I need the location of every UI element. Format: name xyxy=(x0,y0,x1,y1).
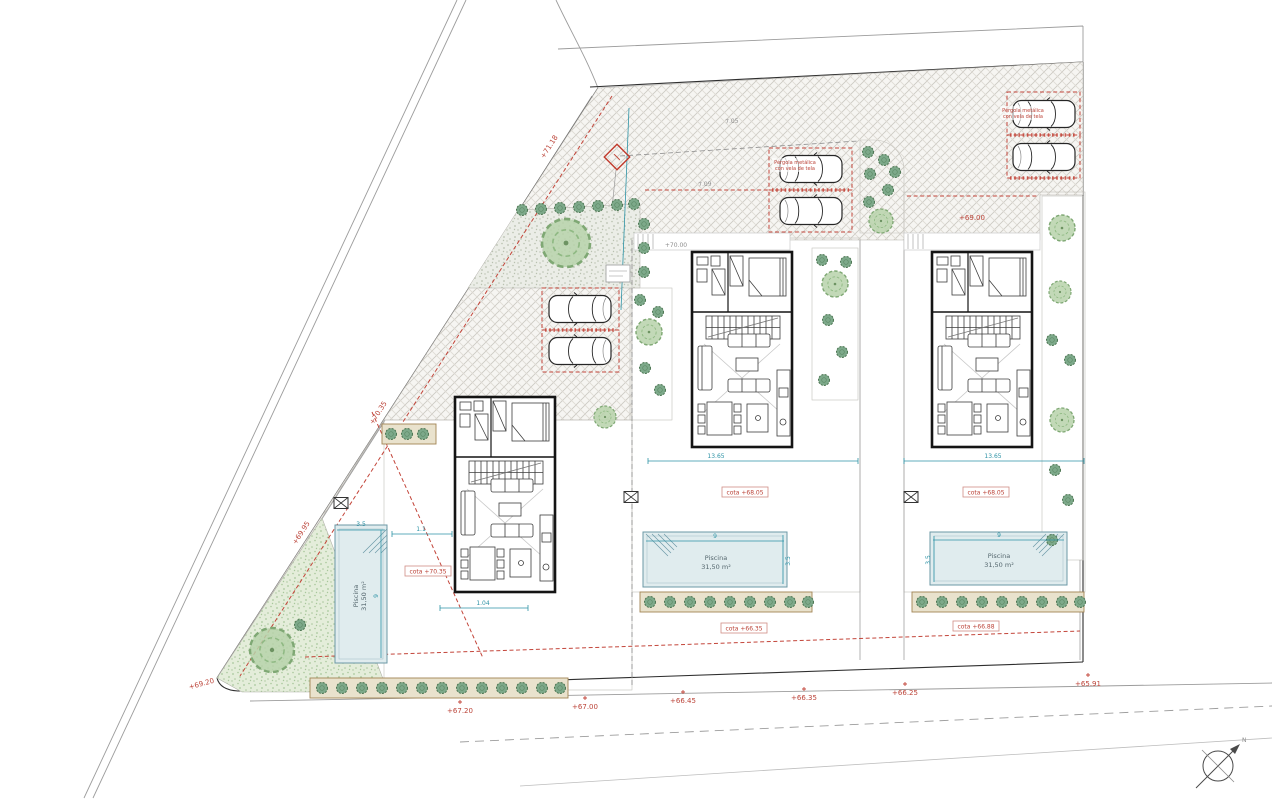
villa-1-plan xyxy=(455,397,555,592)
street-elevation: +65.91 xyxy=(1075,680,1101,688)
north-compass: N xyxy=(1196,737,1247,788)
column-marker xyxy=(334,498,348,509)
north-label: N xyxy=(1242,737,1247,744)
svg-text:cota +70.35: cota +70.35 xyxy=(409,569,446,576)
dimension-label: 13.65 xyxy=(984,453,1001,460)
pool-area: 31,50 m² xyxy=(701,563,731,571)
svg-text:cota +66.88: cota +66.88 xyxy=(957,624,994,631)
villa-3-plan xyxy=(932,252,1032,447)
svg-text:cota +66.35: cota +66.35 xyxy=(725,626,762,633)
dimension-label: 1.1 xyxy=(416,526,426,533)
car xyxy=(1013,141,1075,174)
tree xyxy=(250,628,294,672)
cota-box: cota +70.35 xyxy=(405,566,451,576)
tree xyxy=(1050,408,1074,432)
street-elevation: +66.25 xyxy=(892,689,918,697)
cota-box: cota +68.05 xyxy=(722,487,768,497)
car xyxy=(549,335,611,368)
tree xyxy=(1049,215,1075,241)
column-marker xyxy=(624,492,638,503)
dimension-label: 1.04 xyxy=(476,600,490,607)
svg-text:cota +68.05: cota +68.05 xyxy=(967,490,1004,497)
svg-text:cota +68.05: cota +68.05 xyxy=(726,490,763,497)
dimension-label: 9 xyxy=(373,594,380,598)
tree xyxy=(594,406,616,428)
elevation-label: +70.00 xyxy=(665,242,687,249)
car xyxy=(549,293,611,326)
pergola-note: con vela de tela xyxy=(1003,114,1043,120)
cota-box: cota +66.35 xyxy=(721,623,767,633)
pool-2: Piscina 31,50 m² xyxy=(643,532,787,587)
street-elevation: +67.00 xyxy=(572,703,598,711)
tree xyxy=(1049,281,1071,303)
street-elevation: +66.35 xyxy=(791,694,817,702)
pool-label: Piscina xyxy=(988,552,1010,560)
villa-2-plan xyxy=(692,252,792,447)
pergola-note: Pérgola metálica xyxy=(1002,107,1044,114)
tree xyxy=(542,219,590,267)
elevation-label: +70.35 xyxy=(368,400,389,426)
cota-box: cota +68.05 xyxy=(963,487,1009,497)
pergola-note: con vela de tela xyxy=(775,166,815,172)
elevation-label: +69.20 xyxy=(188,677,215,691)
pool-1: Piscina 31,50 m² xyxy=(335,525,387,663)
elevation-label: +69.00 xyxy=(959,214,985,222)
pool-label: Piscina xyxy=(352,585,360,607)
cota-box: cota +66.88 xyxy=(953,621,999,631)
site-plan-drawing: Piscina 31,50 m² Piscina 31,50 m² Piscin… xyxy=(0,0,1280,800)
dimension-label: 13.65 xyxy=(707,453,724,460)
tree xyxy=(869,209,893,233)
car xyxy=(780,195,842,228)
pool-area: 31,50 m² xyxy=(984,561,1014,569)
pool-label: Piscina xyxy=(705,554,727,562)
dimension-label: 3.5 xyxy=(925,555,932,565)
tree xyxy=(822,271,848,297)
dimension-label: 3.5 xyxy=(356,521,366,528)
street-elevation: +67.20 xyxy=(447,707,473,715)
dimension-label: 7.05 xyxy=(725,118,739,126)
site-plan-page: Piscina 31,50 m² Piscina 31,50 m² Piscin… xyxy=(0,0,1280,800)
tree xyxy=(636,319,662,345)
pool-area: 31,50 m² xyxy=(360,581,368,611)
street-elevation: +66.45 xyxy=(670,697,696,705)
dimension-label: 3.5 xyxy=(785,556,792,566)
column-marker xyxy=(904,492,918,503)
dimension-label: 7.09 xyxy=(698,181,712,189)
pergola-note: Pérgola metálica xyxy=(774,159,816,166)
dimension-label: 9 xyxy=(713,533,717,540)
dimension-label: 9 xyxy=(997,532,1001,539)
